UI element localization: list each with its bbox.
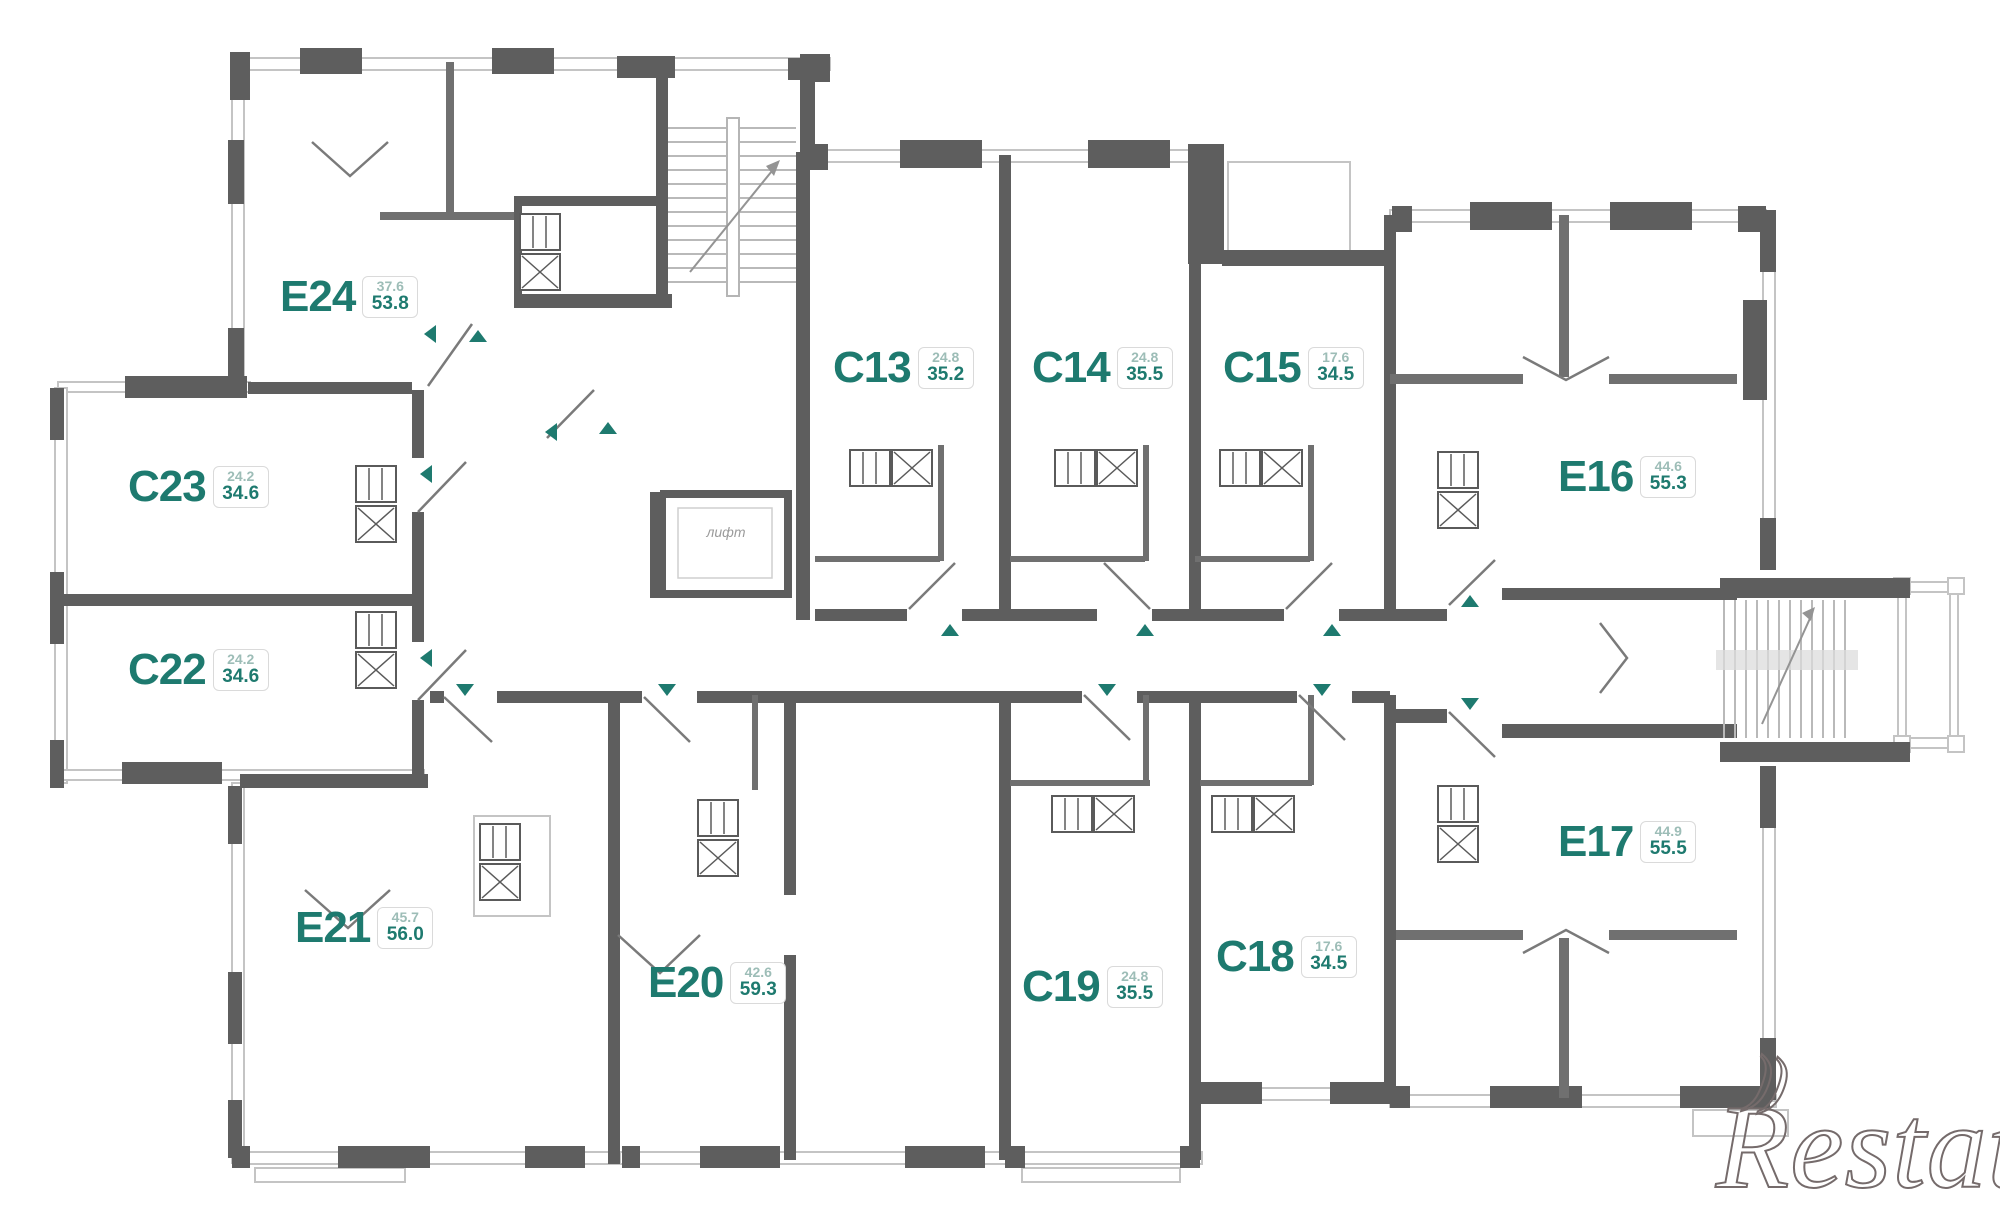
- unit-area-badge: 24.835.5: [1117, 347, 1173, 389]
- unit-area-total: 56.0: [387, 925, 424, 946]
- unit-id: C18: [1216, 932, 1294, 982]
- unit-label-C14: C1424.835.5: [1032, 343, 1173, 393]
- unit-area-living: 44.6: [1655, 459, 1682, 474]
- unit-area-total: 35.5: [1126, 365, 1163, 386]
- unit-id: E16: [1558, 452, 1633, 502]
- unit-area-living: 37.6: [377, 279, 404, 294]
- unit-area-living: 24.2: [227, 652, 254, 667]
- unit-area-living: 24.8: [1121, 969, 1148, 984]
- elevator-label: лифт: [676, 524, 776, 540]
- unit-id: C14: [1032, 343, 1110, 393]
- stairs-top: [668, 118, 796, 296]
- wall-piers: [50, 48, 1776, 1168]
- unit-label-E20: E2042.659.3: [648, 958, 786, 1008]
- unit-id: C19: [1022, 962, 1100, 1012]
- unit-label-C23: C2324.234.6: [128, 462, 269, 512]
- unit-id: C23: [128, 462, 206, 512]
- unit-area-living: 17.6: [1322, 350, 1349, 365]
- unit-area-total: 34.5: [1317, 365, 1354, 386]
- unit-label-C15: C1517.634.5: [1223, 343, 1364, 393]
- unit-id: C13: [833, 343, 911, 393]
- unit-id: E21: [295, 903, 370, 953]
- unit-label-E16: E1644.655.3: [1558, 452, 1696, 502]
- restate-watermark: )) Restate: [1716, 1078, 2000, 1216]
- unit-area-badge: 37.653.8: [362, 276, 418, 318]
- unit-area-total: 34.6: [222, 667, 259, 688]
- unit-area-total: 53.8: [372, 294, 409, 315]
- unit-area-badge: 45.756.0: [377, 907, 433, 949]
- floor-plan-drawing: [0, 0, 2000, 1223]
- unit-area-badge: 17.634.5: [1308, 347, 1364, 389]
- unit-label-C19: C1924.835.5: [1022, 962, 1163, 1012]
- unit-label-E17: E1744.955.5: [1558, 817, 1696, 867]
- unit-id: E24: [280, 272, 355, 322]
- unit-area-living: 24.8: [932, 350, 959, 365]
- unit-id: C15: [1223, 343, 1301, 393]
- unit-label-C18: C1817.634.5: [1216, 932, 1357, 982]
- unit-area-living: 24.8: [1131, 350, 1158, 365]
- unit-area-total: 34.5: [1310, 954, 1347, 975]
- unit-area-living: 44.9: [1655, 824, 1682, 839]
- unit-area-badge: 44.655.3: [1640, 456, 1696, 498]
- unit-id: C22: [128, 645, 206, 695]
- balconies: [255, 162, 1964, 1182]
- unit-area-badge: 24.234.6: [213, 466, 269, 508]
- floor-plan: E2437.653.8C2324.234.6C2224.234.6E2145.7…: [0, 0, 2000, 1223]
- unit-id: E17: [1558, 817, 1633, 867]
- unit-area-total: 59.3: [740, 980, 777, 1001]
- unit-label-E21: E2145.756.0: [295, 903, 433, 953]
- unit-area-total: 55.3: [1650, 474, 1687, 495]
- unit-area-badge: 24.234.6: [213, 649, 269, 691]
- unit-area-total: 35.2: [927, 365, 964, 386]
- unit-label-C22: C2224.234.6: [128, 645, 269, 695]
- unit-area-badge: 24.835.5: [1107, 966, 1163, 1008]
- unit-area-total: 35.5: [1116, 984, 1153, 1005]
- unit-label-C13: C1324.835.2: [833, 343, 974, 393]
- unit-area-badge: 44.955.5: [1640, 821, 1696, 863]
- unit-id: E20: [648, 958, 723, 1008]
- watermark-text: Restate: [1716, 1080, 2000, 1213]
- unit-area-total: 34.6: [222, 484, 259, 505]
- unit-area-living: 45.7: [392, 910, 419, 925]
- unit-label-E24: E2437.653.8: [280, 272, 418, 322]
- unit-area-badge: 17.634.5: [1301, 936, 1357, 978]
- unit-area-living: 17.6: [1315, 939, 1342, 954]
- balcony-right-stair: [1894, 578, 1964, 752]
- stairs-right: [1716, 600, 1858, 738]
- unit-area-living: 24.2: [227, 469, 254, 484]
- unit-area-living: 42.6: [745, 965, 772, 980]
- unit-area-total: 55.5: [1650, 839, 1687, 860]
- unit-area-badge: 24.835.2: [918, 347, 974, 389]
- elevator: [650, 490, 792, 598]
- unit-area-badge: 42.659.3: [730, 962, 786, 1004]
